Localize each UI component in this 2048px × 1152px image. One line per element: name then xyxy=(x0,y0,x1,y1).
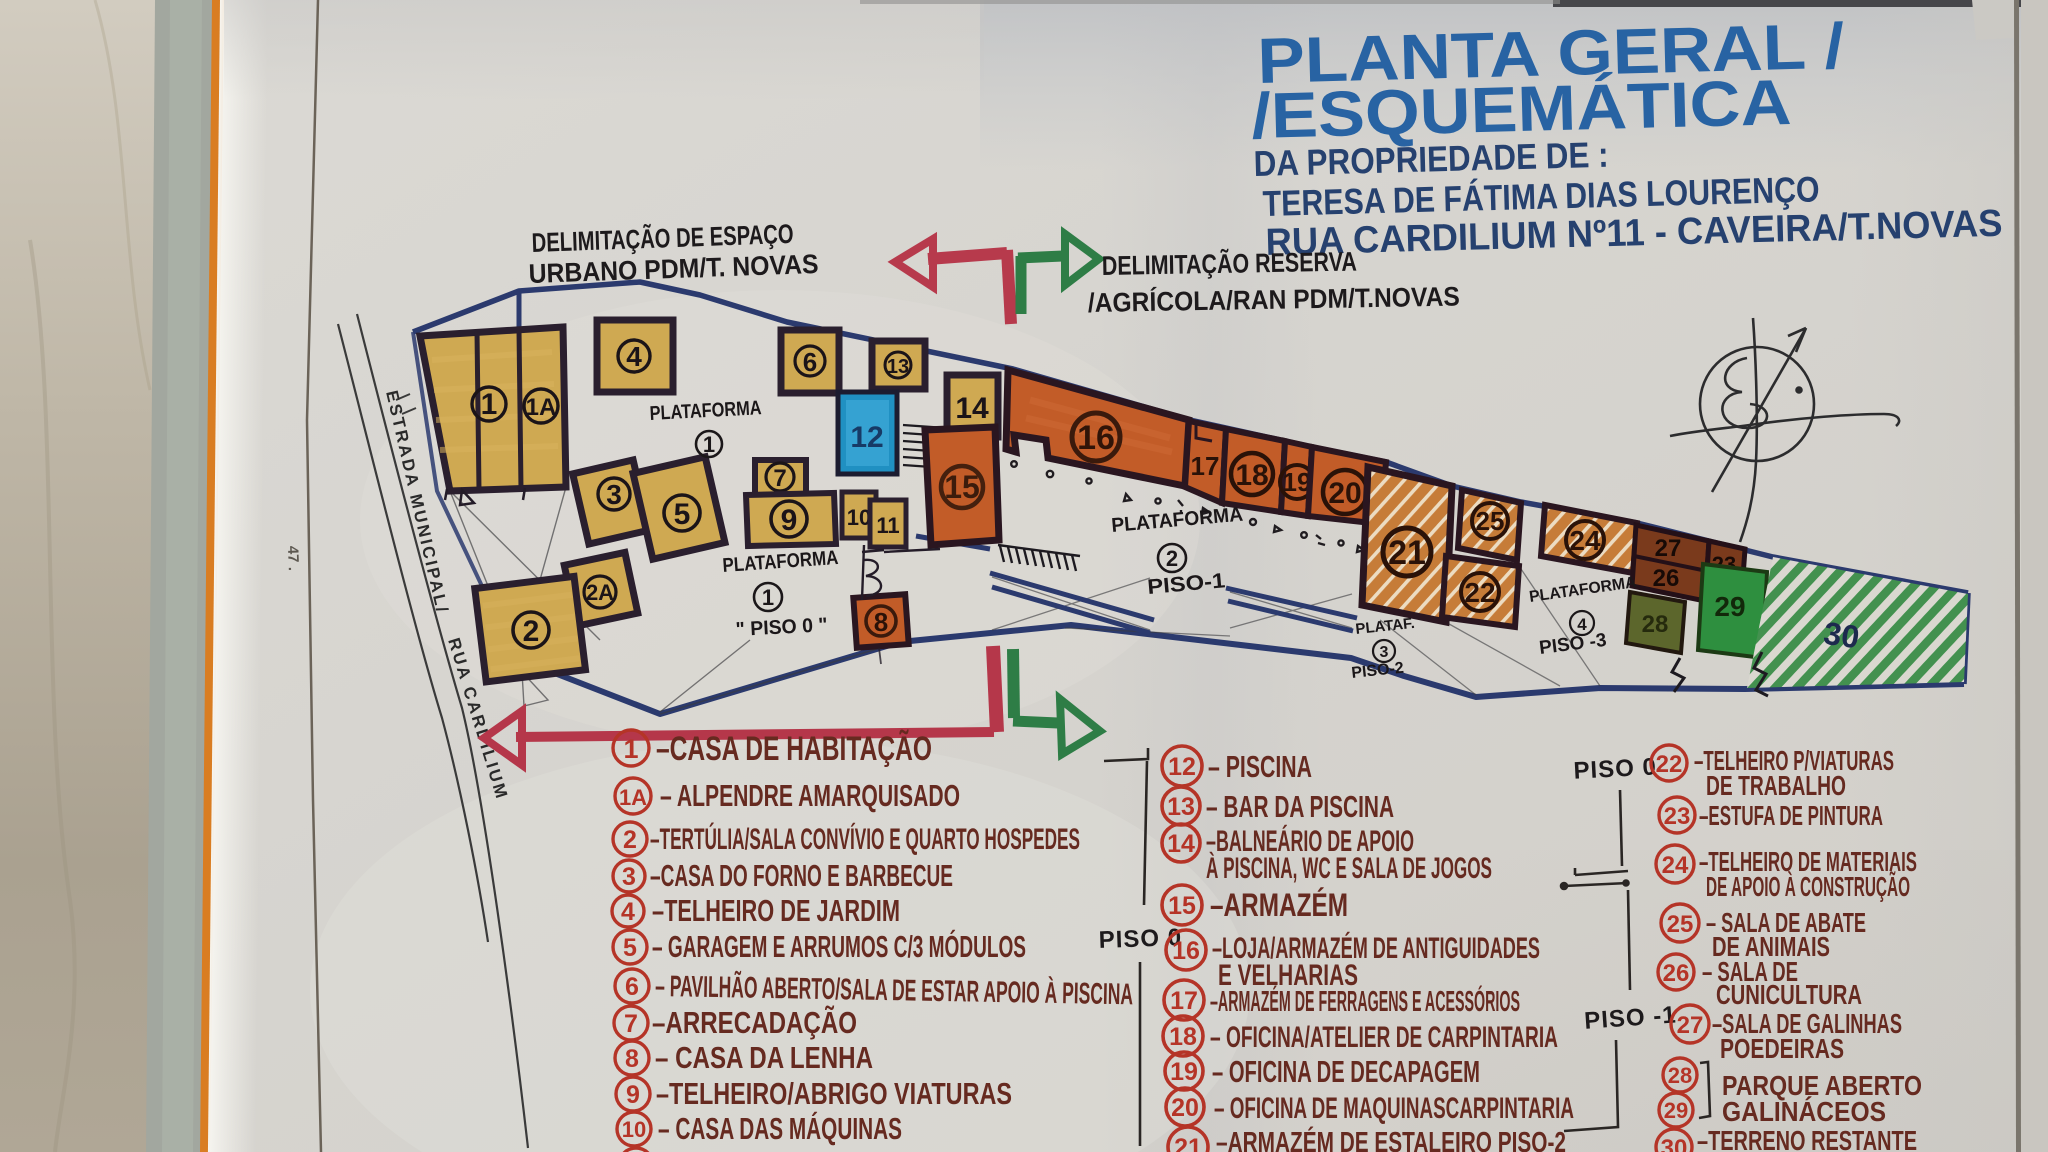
svg-text:DE APOIO À CONSTRUÇÃO: DE APOIO À CONSTRUÇÃO xyxy=(1706,871,1910,902)
svg-text:9: 9 xyxy=(626,1081,640,1109)
svg-text:–ARMAZÉM: –ARMAZÉM xyxy=(1210,887,1348,923)
svg-text:– OFICINA/ATELIER DE CARPINTAR: – OFICINA/ATELIER DE CARPINTARIA xyxy=(1210,1021,1558,1054)
svg-text:25: 25 xyxy=(1667,911,1694,938)
svg-text:18: 18 xyxy=(1169,1023,1197,1051)
svg-text:20: 20 xyxy=(1328,477,1361,510)
svg-text:21: 21 xyxy=(1388,534,1426,572)
svg-text:– CASA DA LENHA: – CASA DA LENHA xyxy=(655,1040,873,1075)
svg-text:– ALPENDRE AMARQUISADO: – ALPENDRE AMARQUISADO xyxy=(660,778,960,813)
svg-text:1: 1 xyxy=(481,388,498,421)
svg-text:27: 27 xyxy=(1655,535,1682,562)
svg-text:24: 24 xyxy=(1569,525,1601,556)
svg-text:–CASA DE HABITAÇÃO: –CASA DE HABITAÇÃO xyxy=(656,730,932,768)
svg-text:47 .: 47 . xyxy=(284,546,302,572)
svg-text:6: 6 xyxy=(625,973,639,1001)
svg-text:29: 29 xyxy=(1714,591,1745,622)
svg-text:4: 4 xyxy=(1577,615,1587,634)
svg-text:5: 5 xyxy=(623,934,637,962)
svg-text:–ESTUFA DE PINTURA: –ESTUFA DE PINTURA xyxy=(1699,800,1883,831)
svg-text:15: 15 xyxy=(1168,892,1196,920)
svg-text:28: 28 xyxy=(1642,611,1669,638)
svg-text:3: 3 xyxy=(606,479,622,510)
svg-text:POEDEIRAS: POEDEIRAS xyxy=(1720,1033,1844,1064)
svg-text:30: 30 xyxy=(1821,615,1861,656)
svg-text:–TELHEIRO/ABRIGO VIATURAS: –TELHEIRO/ABRIGO VIATURAS xyxy=(656,1076,1012,1111)
svg-text:11: 11 xyxy=(876,513,899,538)
svg-text:19: 19 xyxy=(1170,1058,1198,1086)
svg-text:2A: 2A xyxy=(586,580,614,605)
svg-text:3: 3 xyxy=(622,863,636,891)
svg-text:2: 2 xyxy=(1166,546,1178,571)
svg-text:20: 20 xyxy=(1171,1094,1199,1122)
svg-text:10: 10 xyxy=(622,1117,646,1142)
svg-text:–ARMAZÉM DE FERRAGENS E ACESSÓ: –ARMAZÉM DE FERRAGENS E ACESSÓRIOS xyxy=(1210,984,1520,1018)
svg-text:28: 28 xyxy=(1668,1063,1692,1088)
svg-text:–CASA DO FORNO E BARBECUE: –CASA DO FORNO E BARBECUE xyxy=(650,858,953,893)
svg-text:PISO 0: PISO 0 xyxy=(1573,753,1658,784)
svg-text:1: 1 xyxy=(762,585,774,610)
svg-text:5: 5 xyxy=(674,498,691,531)
svg-text:– GARAGEM E ARRUMOS C/3 MÓDULO: – GARAGEM E ARRUMOS C/3 MÓDULOS xyxy=(652,928,1026,964)
svg-text:22: 22 xyxy=(1656,751,1683,778)
svg-text:4: 4 xyxy=(626,341,642,372)
svg-text:– BAR DA PISCINA: – BAR DA PISCINA xyxy=(1206,789,1394,824)
svg-text:DE TRABALHO: DE TRABALHO xyxy=(1706,770,1846,801)
svg-text:30: 30 xyxy=(1661,1135,1688,1152)
svg-text:17: 17 xyxy=(1191,451,1220,481)
svg-text:13: 13 xyxy=(1167,793,1195,821)
svg-text:– OFICINA DE MAQUINASCARPINTAR: – OFICINA DE MAQUINASCARPINTARIA xyxy=(1214,1092,1574,1125)
svg-text:CUNICULTURA: CUNICULTURA xyxy=(1716,979,1862,1010)
svg-text:21: 21 xyxy=(1174,1134,1202,1152)
svg-text:–TERTÚLIA/SALA CONVÍVIO E QUAR: –TERTÚLIA/SALA CONVÍVIO E QUARTO HOSPEDE… xyxy=(650,822,1080,856)
svg-text:6: 6 xyxy=(803,347,817,377)
svg-text:24: 24 xyxy=(1662,852,1689,879)
svg-text:12: 12 xyxy=(850,421,883,454)
svg-text:–ARMAZÉM DE ESTALEIRO PISO-2: –ARMAZÉM DE ESTALEIRO PISO-2 xyxy=(1216,1125,1566,1152)
svg-text:– CASA DAS MÁQUINAS: – CASA DAS MÁQUINAS xyxy=(658,1111,902,1146)
svg-text:14: 14 xyxy=(955,392,989,425)
svg-text:–TELHEIRO DE JARDIM: –TELHEIRO DE JARDIM xyxy=(652,893,900,928)
svg-text:GALINÁCEOS: GALINÁCEOS xyxy=(1722,1096,1886,1127)
svg-text:1: 1 xyxy=(703,432,715,457)
svg-text:8: 8 xyxy=(625,1045,639,1073)
svg-text:14: 14 xyxy=(1167,830,1195,858)
svg-text:2: 2 xyxy=(623,826,637,854)
svg-text:23: 23 xyxy=(1664,803,1691,830)
svg-text:/AGRÍCOLA/RAN PDM/T.NOVAS: /AGRÍCOLA/RAN PDM/T.NOVAS xyxy=(1088,281,1460,318)
svg-text:8: 8 xyxy=(874,607,888,637)
svg-text:15: 15 xyxy=(944,469,980,505)
svg-text:9: 9 xyxy=(781,504,798,537)
svg-text:16: 16 xyxy=(1172,937,1200,965)
svg-text:25: 25 xyxy=(1476,506,1505,536)
svg-text:29: 29 xyxy=(1664,1098,1688,1123)
svg-text:4: 4 xyxy=(621,898,635,926)
svg-text:13: 13 xyxy=(887,356,909,378)
svg-text:3: 3 xyxy=(1380,644,1389,661)
svg-text:–TERRENO RESTANTE: –TERRENO RESTANTE xyxy=(1697,1125,1917,1152)
svg-text:2: 2 xyxy=(523,615,540,648)
svg-text:16: 16 xyxy=(1077,419,1115,457)
svg-text:7: 7 xyxy=(624,1010,638,1038)
svg-text:7: 7 xyxy=(773,465,786,492)
svg-text:– PISCINA: – PISCINA xyxy=(1208,749,1312,784)
svg-text:17: 17 xyxy=(1170,987,1198,1015)
svg-text:18: 18 xyxy=(1235,459,1268,492)
svg-text:22: 22 xyxy=(1464,577,1495,608)
svg-text:– OFICINA DE DECAPAGEM: – OFICINA DE DECAPAGEM xyxy=(1212,1054,1480,1089)
svg-text:–ARRECADAÇÃO: –ARRECADAÇÃO xyxy=(652,1005,857,1040)
svg-text:27: 27 xyxy=(1677,1012,1704,1039)
svg-text:1A: 1A xyxy=(526,394,557,421)
svg-text:26: 26 xyxy=(1663,960,1690,987)
svg-text:26: 26 xyxy=(1653,565,1680,592)
svg-text:À PISCINA, WC E SALA DE JOGOS: À PISCINA, WC E SALA DE JOGOS xyxy=(1206,851,1492,885)
svg-text:12: 12 xyxy=(1168,753,1196,781)
svg-text:DELIMITAÇÃO RESERVA: DELIMITAÇÃO RESERVA xyxy=(1102,246,1358,281)
svg-text:1A: 1A xyxy=(619,785,647,810)
svg-text:1: 1 xyxy=(623,734,638,764)
